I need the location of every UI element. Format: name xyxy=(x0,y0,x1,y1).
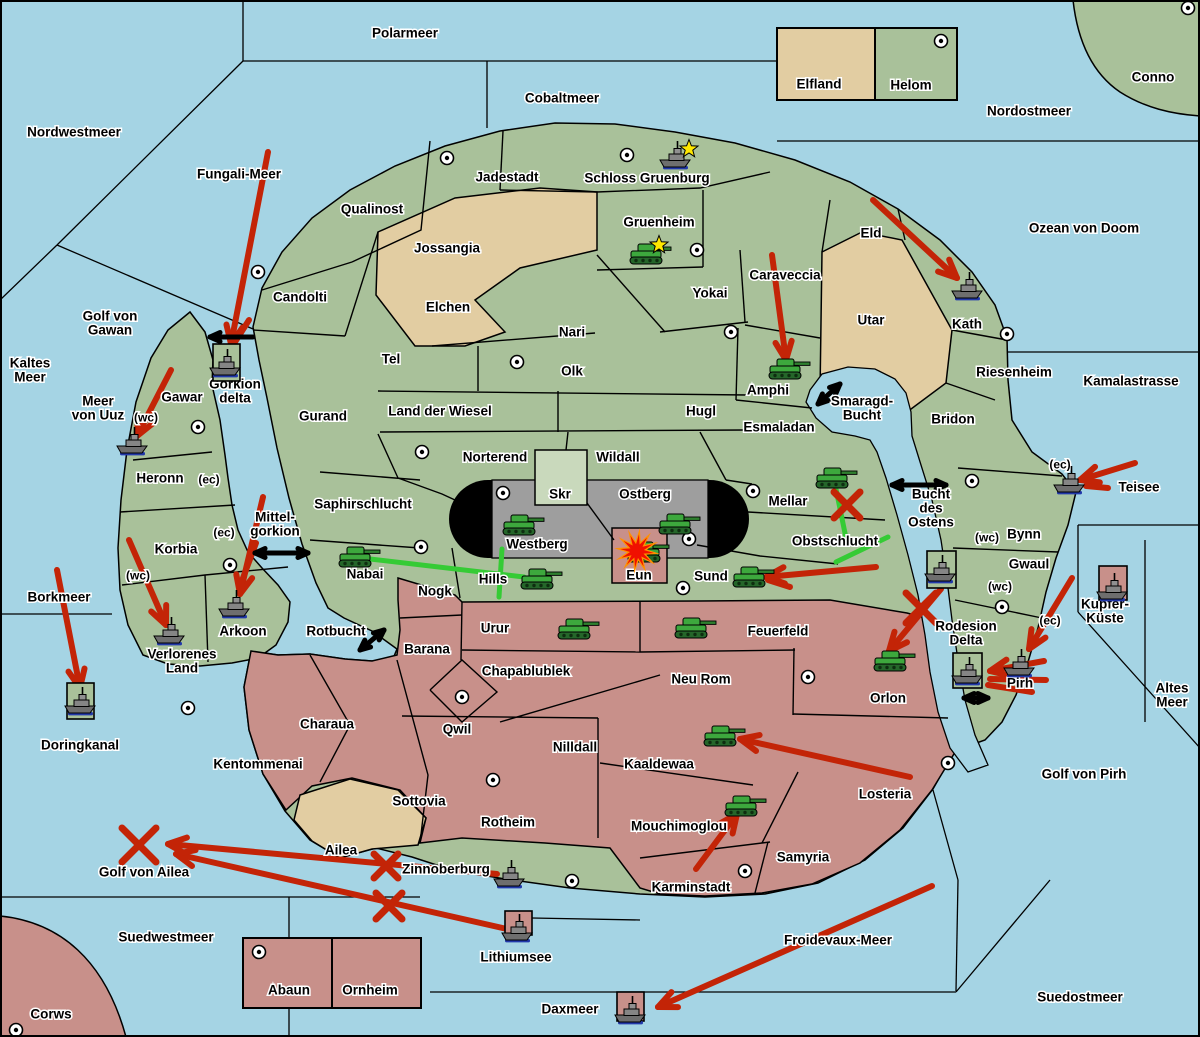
sea-label-text: Polarmeer xyxy=(372,26,439,41)
province-label-text: Heronn xyxy=(136,471,183,486)
tank-wheel xyxy=(758,582,761,585)
ship-bridge xyxy=(966,665,973,671)
tank-wheel xyxy=(834,483,837,486)
ship-hull xyxy=(117,446,147,453)
province-label: Chapablublek xyxy=(482,664,571,679)
coast-marker: (wc) xyxy=(988,580,1012,594)
province-label-text: Qwil xyxy=(443,722,472,737)
supply-center-core xyxy=(14,1028,18,1032)
sea-label-text: Gawan xyxy=(88,323,132,338)
supply-center-dot xyxy=(747,485,760,498)
coast-marker: (ec) xyxy=(198,473,219,487)
sea-label-text: Rotbucht xyxy=(306,624,366,639)
supply-center-dot xyxy=(511,356,524,369)
ship-superstructure xyxy=(624,1009,639,1016)
tank-wheel xyxy=(364,562,367,565)
province-label-text: Hills xyxy=(479,572,508,587)
ship-hull xyxy=(154,636,184,643)
province-label: Nari xyxy=(559,325,585,340)
tank-wheel xyxy=(743,811,746,814)
sea-label-text: Meer xyxy=(14,370,46,385)
supply-center-core xyxy=(228,563,232,567)
province-label: Bynn xyxy=(1007,527,1041,542)
province-label-text: Hugl xyxy=(686,404,716,419)
coast-marker: (ec) xyxy=(1039,614,1060,628)
province-label-text: Corws xyxy=(30,1007,71,1022)
sea-label-text: Küste xyxy=(1086,611,1124,626)
ship-superstructure xyxy=(1013,662,1028,669)
tank-wheel xyxy=(827,483,830,486)
province-label-text: Abaun xyxy=(268,983,310,998)
sea-label: Polarmeer xyxy=(372,26,439,41)
supply-center-core xyxy=(419,545,423,549)
province-label: Sottovia xyxy=(392,794,446,809)
tank-wheel xyxy=(744,582,747,585)
sea-label-text: Golf von xyxy=(83,309,138,324)
province-label: Schloss Gruenburg xyxy=(584,171,709,186)
province-label: Gawar xyxy=(161,390,203,405)
tank-wheel xyxy=(641,259,644,262)
supply-center-dot xyxy=(253,946,266,959)
province-label-text: Helom xyxy=(890,78,931,93)
province-label-text: Karminstadt xyxy=(652,880,731,895)
province-label: Elchen xyxy=(426,300,470,315)
province-label-text: Samyria xyxy=(777,850,830,865)
attack-arrow-stroke xyxy=(1086,486,1108,488)
sea-label-text: des xyxy=(919,501,942,516)
province-label: Nabai xyxy=(347,567,384,582)
tank-wheel xyxy=(514,530,517,533)
province-label-text: Nabai xyxy=(347,567,384,582)
ship-superstructure xyxy=(1063,479,1078,486)
province-label: Hills xyxy=(479,572,508,587)
province-label: Obstschlucht xyxy=(792,534,879,549)
province-label-text: Ostberg xyxy=(619,487,671,502)
tank-wheel xyxy=(684,529,687,532)
province-label-text: Norterend xyxy=(463,450,528,465)
sea-label-text: gorkion xyxy=(250,524,300,539)
province-label-text: Elfland xyxy=(796,77,841,92)
arrow-head xyxy=(1029,629,1031,649)
province-label: Kath xyxy=(952,317,982,332)
province-label: Sund xyxy=(694,569,728,584)
province-label: Candolti xyxy=(273,290,327,305)
supply-center-core xyxy=(491,778,495,782)
sea-label: Kamalastrasse xyxy=(1083,374,1179,389)
ship-hull xyxy=(1097,592,1127,599)
province-label-text: Ailea xyxy=(325,843,358,858)
province-label: Gwaul xyxy=(1009,557,1050,572)
province-label: Elfland xyxy=(796,77,841,92)
province-label-text: Olk xyxy=(561,364,583,379)
province-label: Samyria xyxy=(777,850,830,865)
ship-superstructure xyxy=(934,568,949,575)
sea-label-text: Ostens xyxy=(908,515,954,530)
province-label: Skr xyxy=(549,487,572,502)
arrow-head xyxy=(740,735,760,739)
arrow-head xyxy=(176,850,196,854)
ship-bridge xyxy=(1068,474,1075,480)
supply-center-core xyxy=(687,537,691,541)
sea-label: Ozean von Doom xyxy=(1029,221,1139,236)
tank-wheel xyxy=(653,557,656,560)
ship-bridge xyxy=(131,435,138,441)
coast-marker: (ec) xyxy=(213,526,234,540)
tank-wheel xyxy=(569,634,572,637)
supply-center-core xyxy=(1005,332,1009,336)
supply-center-core xyxy=(806,675,810,679)
tank-wheel xyxy=(525,584,528,587)
ship-bridge xyxy=(508,868,515,874)
province-label-text: Feuerfeld xyxy=(748,624,809,639)
province-label-text: Sund xyxy=(694,569,728,584)
province-label: Conno xyxy=(1132,70,1175,85)
province-label: Feuerfeld xyxy=(748,624,809,639)
province-label-text: Nari xyxy=(559,325,585,340)
supply-center-dot xyxy=(456,691,469,704)
sea-label-text: Kamalastrasse xyxy=(1083,374,1179,389)
tank-wheel xyxy=(583,634,586,637)
sea-label: Lithiumsee xyxy=(480,950,552,965)
coast-marker-text: (wc) xyxy=(134,411,158,425)
ship-bridge xyxy=(233,598,240,604)
province-label: Neu Rom xyxy=(671,672,730,687)
province-label: Kaaldewaa xyxy=(624,757,694,772)
sea-label-text: Bucht xyxy=(912,487,951,502)
province-label: Heronn xyxy=(136,471,183,486)
ship-bridge xyxy=(966,280,973,286)
ship-bridge xyxy=(516,922,523,928)
ship-bridge xyxy=(1018,657,1025,663)
province-label-text: Urur xyxy=(481,621,510,636)
ship-superstructure xyxy=(961,285,976,292)
province-label-text: Rotheim xyxy=(481,815,535,830)
supply-center-core xyxy=(751,489,755,493)
sea-label: KaltesMeer xyxy=(10,356,51,385)
supply-center-dot xyxy=(691,244,704,257)
sea-label-text: Smaragd- xyxy=(831,394,893,409)
supply-center-dot xyxy=(677,582,690,595)
ship-hull xyxy=(1054,485,1084,492)
supply-center-core xyxy=(196,425,200,429)
tank-wheel xyxy=(521,530,524,533)
tank-wheel xyxy=(841,483,844,486)
sea-label-text: Nordostmeer xyxy=(987,104,1072,119)
province-label: Gruenheim xyxy=(623,215,694,230)
province-label-text: Nilldall xyxy=(553,740,597,755)
ship-hull xyxy=(502,933,532,940)
province-label-text: Amphi xyxy=(747,383,789,398)
ship-superstructure xyxy=(1106,586,1121,593)
coast-marker: (wc) xyxy=(134,411,158,425)
tank-wheel xyxy=(532,584,535,587)
supply-center-core xyxy=(946,761,950,765)
province-label: Nilldall xyxy=(553,740,597,755)
province-label: Westberg xyxy=(506,537,567,552)
province-label-text: Utar xyxy=(857,313,885,328)
province-label-text: Land xyxy=(166,661,198,676)
province-label-text: Candolti xyxy=(273,290,327,305)
ship-superstructure xyxy=(669,154,684,161)
province-label-text: Orlon xyxy=(870,691,906,706)
supply-center-dot xyxy=(566,875,579,888)
province-label-text: Gurand xyxy=(299,409,347,424)
province-label: Saphirschlucht xyxy=(314,497,412,512)
province-label-text: Jadestadt xyxy=(475,170,539,185)
coast-marker-text: (wc) xyxy=(988,580,1012,594)
ship-hull xyxy=(210,368,240,375)
sea-label-text: Fungali-Meer xyxy=(197,167,282,182)
province-label: Riesenheim xyxy=(976,365,1052,380)
sea-label-text: Daxmeer xyxy=(541,1002,599,1017)
province-label: Karminstadt xyxy=(652,880,731,895)
tank-wheel xyxy=(546,584,549,587)
supply-center-dot xyxy=(802,671,815,684)
ship-hull xyxy=(1004,668,1034,675)
tank-wheel xyxy=(350,562,353,565)
sea-label-text: Rodesion xyxy=(935,619,997,634)
coast-marker-text: (ec) xyxy=(198,473,219,487)
sea-label-text: Mittel- xyxy=(255,510,295,525)
sea-label-text: Delta xyxy=(949,633,983,648)
tank-wheel xyxy=(780,374,783,377)
ship-bridge xyxy=(79,695,86,701)
supply-center-core xyxy=(970,479,974,483)
sea-label-text: Lithiumsee xyxy=(480,950,552,965)
ship-bridge xyxy=(224,357,231,363)
tank-wheel xyxy=(722,741,725,744)
sea-label-text: Meer xyxy=(1156,695,1188,710)
province-label-text: Tel xyxy=(382,352,401,367)
province-label: Pirh xyxy=(1007,676,1033,691)
province-label-text: Gwaul xyxy=(1009,557,1050,572)
tank-wheel xyxy=(686,633,689,636)
coast-marker: (ec) xyxy=(1049,458,1070,472)
supply-center-dot xyxy=(1001,328,1014,341)
tank-wheel xyxy=(663,529,666,532)
province-label: Caraveccia xyxy=(749,268,821,283)
tank-wheel xyxy=(715,741,718,744)
supply-center-core xyxy=(420,450,424,454)
province-border xyxy=(461,602,462,660)
tank-wheel xyxy=(700,633,703,636)
tank-wheel xyxy=(773,374,776,377)
ship-superstructure xyxy=(511,927,526,934)
sea-label-text: Golf von Pirh xyxy=(1042,767,1127,782)
province-label: Utar xyxy=(857,313,885,328)
supply-center-core xyxy=(256,270,260,274)
supply-center-core xyxy=(625,153,629,157)
province-label: Urur xyxy=(481,621,510,636)
supply-center-dot xyxy=(1182,2,1195,15)
sea-label-text: Suedostmeer xyxy=(1037,990,1123,1005)
coast-marker: (wc) xyxy=(975,531,999,545)
supply-center-dot xyxy=(942,757,955,770)
province-label-text: Arkoon xyxy=(219,624,266,639)
province-label: Nogk xyxy=(418,584,452,599)
tank-wheel xyxy=(357,562,360,565)
province-label: Korbia xyxy=(155,542,198,557)
province-label-text: Yokai xyxy=(692,286,727,301)
sea-label: Golf von Ailea xyxy=(99,865,190,880)
supply-center-dot xyxy=(996,601,1009,614)
supply-center-core xyxy=(445,156,449,160)
tank-wheel xyxy=(737,582,740,585)
supply-center-dot xyxy=(621,149,634,162)
province-label-text: Ornheim xyxy=(342,983,398,998)
supply-center-core xyxy=(939,39,943,43)
province-label-text: Conno xyxy=(1132,70,1175,85)
province-label-text: Gruenheim xyxy=(623,215,694,230)
tank-wheel xyxy=(670,529,673,532)
supply-center-dot xyxy=(252,266,265,279)
ship-superstructure xyxy=(163,630,178,637)
province-label: Barana xyxy=(404,642,450,657)
supply-center-dot xyxy=(192,421,205,434)
province-label-text: Wildall xyxy=(596,450,639,465)
ship-superstructure xyxy=(961,670,976,677)
supply-center-dot xyxy=(182,702,195,715)
tank-wheel xyxy=(562,634,565,637)
province-label-text: Sottovia xyxy=(392,794,446,809)
ship-hull xyxy=(952,676,982,683)
province-label-text: Nogk xyxy=(418,584,452,599)
sea-label: Suedostmeer xyxy=(1037,990,1123,1005)
supply-center-dot xyxy=(487,774,500,787)
ship-hull xyxy=(494,879,524,886)
tank-wheel xyxy=(899,666,902,669)
coast-marker-text: (ec) xyxy=(1049,458,1070,472)
tank-wheel xyxy=(679,633,682,636)
province-label-text: Bynn xyxy=(1007,527,1041,542)
province-label: Yokai xyxy=(692,286,727,301)
province-label-text: Kath xyxy=(952,317,982,332)
coast-marker-text: (ec) xyxy=(213,526,234,540)
province-label-text: Losteria xyxy=(859,787,912,802)
ship-bridge xyxy=(168,625,175,631)
tank-wheel xyxy=(750,811,753,814)
tank-wheel xyxy=(878,666,881,669)
supply-center-core xyxy=(186,706,190,710)
province-label: Bridon xyxy=(931,412,975,427)
province-label: Eun xyxy=(626,568,652,583)
province-label: Jadestadt xyxy=(475,170,539,185)
province-label-text: Bridon xyxy=(931,412,975,427)
tank-wheel xyxy=(343,562,346,565)
ship-bridge xyxy=(629,1004,636,1010)
tank-wheel xyxy=(820,483,823,486)
province-label-text: Kaaldewaa xyxy=(624,757,694,772)
ship-superstructure xyxy=(219,362,234,369)
province-label-text: Zinnoberburg xyxy=(402,862,490,877)
ship-superstructure xyxy=(74,700,89,707)
province-label: Mellar xyxy=(768,494,808,509)
tank-wheel xyxy=(708,741,711,744)
province-label-text: Qualinost xyxy=(341,202,404,217)
supply-center-core xyxy=(570,879,574,883)
tank-wheel xyxy=(729,741,732,744)
province-label-text: Westberg xyxy=(506,537,567,552)
province-label-text: Schloss Gruenburg xyxy=(584,171,709,186)
province-label: Helom xyxy=(890,78,931,93)
province-label: Ostberg xyxy=(619,487,671,502)
tank-wheel xyxy=(794,374,797,377)
province-label: Gurand xyxy=(299,409,347,424)
sea-label-text: Bucht xyxy=(843,408,882,423)
sea-label-text: Meer xyxy=(82,394,114,409)
sea-label-text: Suedwestmeer xyxy=(118,930,214,945)
ship-hull xyxy=(952,291,982,298)
province-label-text: Eld xyxy=(860,226,881,241)
tank-wheel xyxy=(648,259,651,262)
tank-wheel xyxy=(507,530,510,533)
province-label-text: Barana xyxy=(404,642,450,657)
province-label-text: Chapablublek xyxy=(482,664,571,679)
province-label: Arkoon xyxy=(219,624,266,639)
province-label-text: Eun xyxy=(626,568,652,583)
sea-label-text: Altes xyxy=(1155,681,1188,696)
province-label: Corws xyxy=(30,1007,71,1022)
province-label: Olk xyxy=(561,364,583,379)
province-label-text: Charaua xyxy=(300,717,355,732)
tank-wheel xyxy=(655,259,658,262)
province-label-text: Kentommenai xyxy=(213,757,302,772)
supply-center-core xyxy=(743,869,747,873)
province-label: Tel xyxy=(382,352,401,367)
supply-center-dot xyxy=(725,326,738,339)
ship-bridge xyxy=(939,563,946,569)
strategy-game-map: PolarmeerCobaltmeerNordwestmeerFungali-M… xyxy=(0,0,1200,1037)
sea-label-text: Doringkanal xyxy=(41,738,119,753)
province-label: Abaun xyxy=(268,983,310,998)
province-label: Zinnoberburg xyxy=(402,862,490,877)
supply-center-core xyxy=(515,360,519,364)
sea-label: Daxmeer xyxy=(541,1002,599,1017)
province-label: Orlon xyxy=(870,691,906,706)
sea-label-text: Nordwestmeer xyxy=(27,125,122,140)
sea-label: Borkmeer xyxy=(27,590,91,605)
tank-wheel xyxy=(729,811,732,814)
sea-label-text: Borkmeer xyxy=(27,590,91,605)
province-label: Ornheim xyxy=(342,983,398,998)
supply-center-dot xyxy=(966,475,979,488)
province-label-text: Caraveccia xyxy=(749,268,821,283)
supply-center-core xyxy=(1186,6,1190,10)
province-label-text: Land der Wiesel xyxy=(388,404,491,419)
supply-center-dot xyxy=(441,152,454,165)
sea-label: Rotbucht xyxy=(306,624,366,639)
province-label: Esmaladan xyxy=(743,420,814,435)
supply-center-dot xyxy=(10,1024,23,1037)
supply-center-dot xyxy=(415,541,428,554)
sea-label: Suedwestmeer xyxy=(118,930,214,945)
province-label-text: delta xyxy=(219,391,251,406)
supply-center-dot xyxy=(935,35,948,48)
sea-label: Nordwestmeer xyxy=(27,125,122,140)
ship-superstructure xyxy=(503,873,518,880)
tank-wheel xyxy=(787,374,790,377)
sea-label-text: Teisee xyxy=(1118,480,1160,495)
coast-marker-text: (wc) xyxy=(126,569,150,583)
sea-label: Teisee xyxy=(1118,480,1160,495)
sea-label-text: von Uuz xyxy=(72,408,125,423)
supply-center-dot xyxy=(224,559,237,572)
coast-marker: (wc) xyxy=(126,569,150,583)
sea-label-text: Kaltes xyxy=(10,356,51,371)
sea-label-text: Cobaltmeer xyxy=(525,91,600,106)
province-border xyxy=(793,648,794,715)
province-label: Amphi xyxy=(747,383,789,398)
